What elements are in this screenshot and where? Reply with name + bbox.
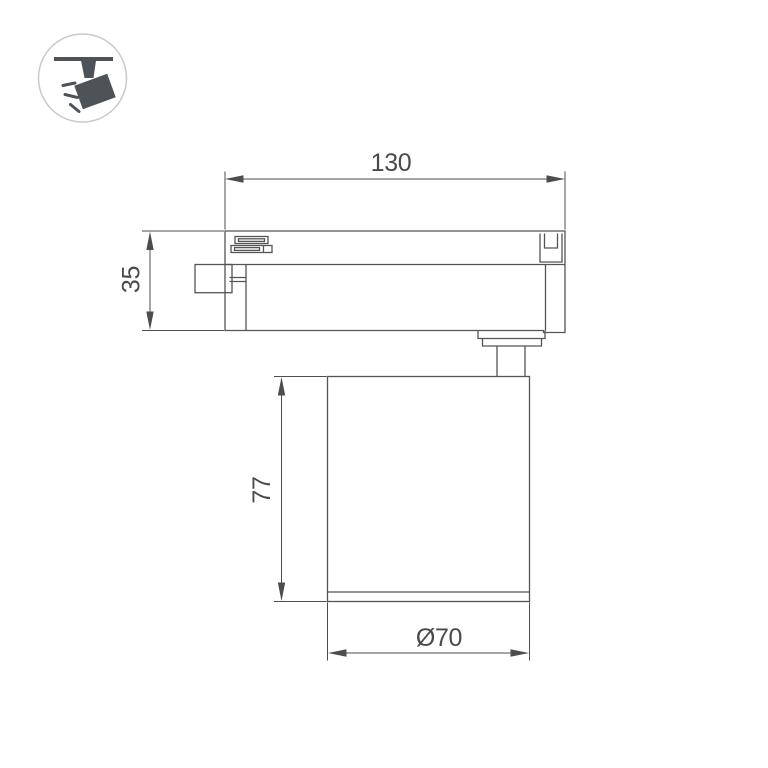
stem-flange-upper	[478, 331, 545, 339]
drawing-canvas: 130 35 77 Ø70	[0, 0, 768, 768]
part-outline	[195, 231, 565, 602]
dim-body-height-label: 77	[248, 476, 276, 503]
arrow-body-bottom	[278, 583, 285, 602]
lamp-body	[328, 377, 530, 602]
dimension-drawing-svg: 130 35 77 Ø70	[0, 0, 768, 768]
stem-flange-lower	[483, 339, 542, 347]
contact-tab-lower	[231, 246, 272, 253]
arrow-diameter-left	[328, 649, 347, 656]
icon-circle	[39, 34, 127, 122]
dimension-annotations: 130 35 77 Ø70	[118, 149, 566, 661]
track-adapter-body	[225, 231, 565, 333]
arrow-width-right	[547, 175, 566, 182]
dim-overall-width-label: 130	[371, 149, 412, 177]
adapter-clip-inner	[545, 234, 558, 249]
adapter-lever	[195, 265, 232, 293]
icon-track-bar	[54, 57, 113, 61]
dim-body-diameter-label: Ø70	[416, 624, 462, 652]
product-type-icon	[39, 34, 127, 122]
dim-adapter-height-label: 35	[118, 266, 146, 293]
arrow-width-left	[225, 175, 244, 182]
dimension-labels: 130 35 77 Ø70	[118, 149, 463, 652]
arrow-adapter-bottom	[146, 312, 153, 331]
dimension-lines	[142, 172, 565, 661]
contact-tab-upper-inner	[239, 239, 265, 242]
arrow-adapter-top	[146, 232, 153, 251]
contact-tab-upper	[235, 237, 268, 244]
arrow-diameter-right	[511, 649, 530, 656]
contact-tab-lower-inner	[235, 248, 260, 251]
arrow-body-top	[278, 377, 285, 396]
dimension-arrows	[146, 175, 565, 656]
